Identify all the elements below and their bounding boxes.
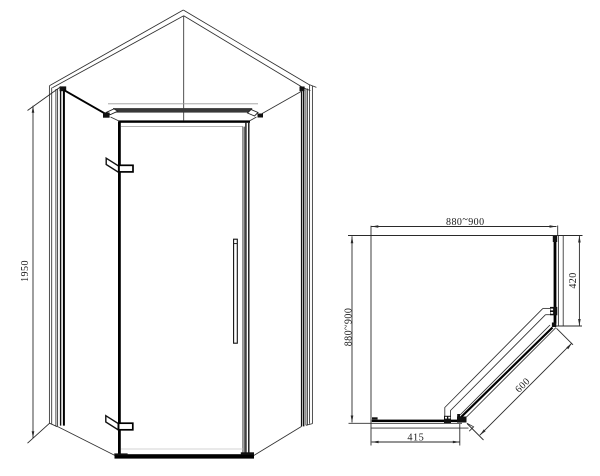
svg-text:420: 420 <box>568 272 579 288</box>
svg-text:415: 415 <box>407 432 424 443</box>
svg-text:1950: 1950 <box>20 260 31 282</box>
